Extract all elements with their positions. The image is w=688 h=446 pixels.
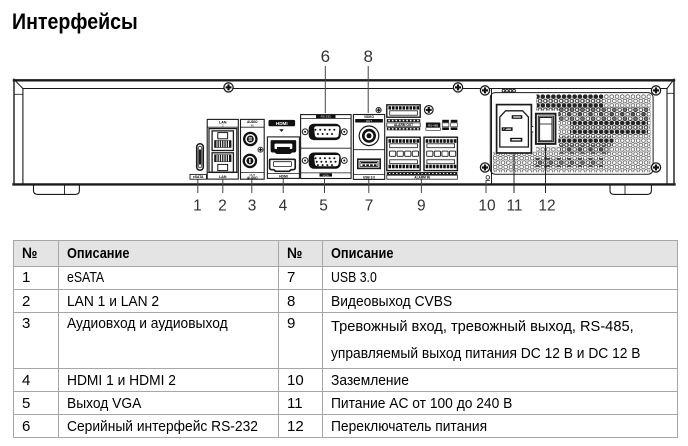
svg-text:11: 11 (506, 198, 522, 215)
svg-text:9: 9 (417, 198, 426, 215)
svg-text:7: 7 (365, 198, 374, 215)
svg-text:8: 8 (363, 47, 372, 66)
svg-text:12: 12 (538, 198, 555, 215)
svg-text:eSATA: eSATA (193, 175, 204, 179)
svg-text:10: 10 (478, 198, 496, 215)
svg-text:VGA: VGA (323, 174, 329, 178)
svg-text:AUDIO: AUDIO (247, 176, 258, 180)
svg-text:HDMI: HDMI (276, 121, 288, 126)
svg-text:RS-485: RS-485 (428, 123, 439, 127)
svg-text:5: 5 (319, 198, 328, 215)
svg-text:1: 1 (193, 198, 202, 215)
svg-text:ALARM OUT: ALARM OUT (394, 123, 413, 127)
svg-text:LAN: LAN (219, 175, 227, 179)
svg-text:ALARM IN: ALARM IN (414, 176, 430, 180)
svg-text:OUT: OUT (366, 119, 372, 123)
svg-text:3: 3 (248, 198, 257, 215)
svg-text:4: 4 (279, 198, 288, 215)
svg-text:2: 2 (218, 198, 227, 215)
svg-text:HDMI: HDMI (279, 175, 288, 179)
svg-text:USB 3.0: USB 3.0 (363, 175, 375, 179)
svg-text:6: 6 (321, 47, 330, 66)
svg-text:RS-232: RS-232 (321, 115, 332, 119)
